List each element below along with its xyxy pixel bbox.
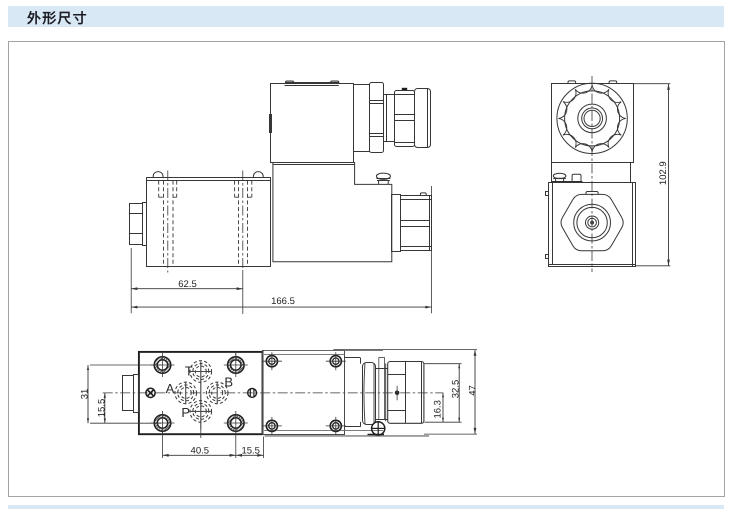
svg-text:62.5: 62.5 <box>178 279 197 290</box>
svg-text:T: T <box>185 364 193 379</box>
svg-text:B: B <box>224 374 233 389</box>
svg-text:A: A <box>166 381 175 396</box>
svg-text:47: 47 <box>467 385 478 396</box>
svg-text:32.5: 32.5 <box>451 380 462 399</box>
svg-text:31: 31 <box>79 389 90 400</box>
svg-text:15.5: 15.5 <box>96 399 107 418</box>
svg-text:40.5: 40.5 <box>191 446 210 457</box>
svg-text:15.5: 15.5 <box>241 446 260 457</box>
svg-text:102.9: 102.9 <box>658 161 669 185</box>
svg-text:16.3: 16.3 <box>433 400 444 419</box>
svg-text:166.5: 166.5 <box>271 296 295 307</box>
svg-text:P: P <box>181 405 190 420</box>
